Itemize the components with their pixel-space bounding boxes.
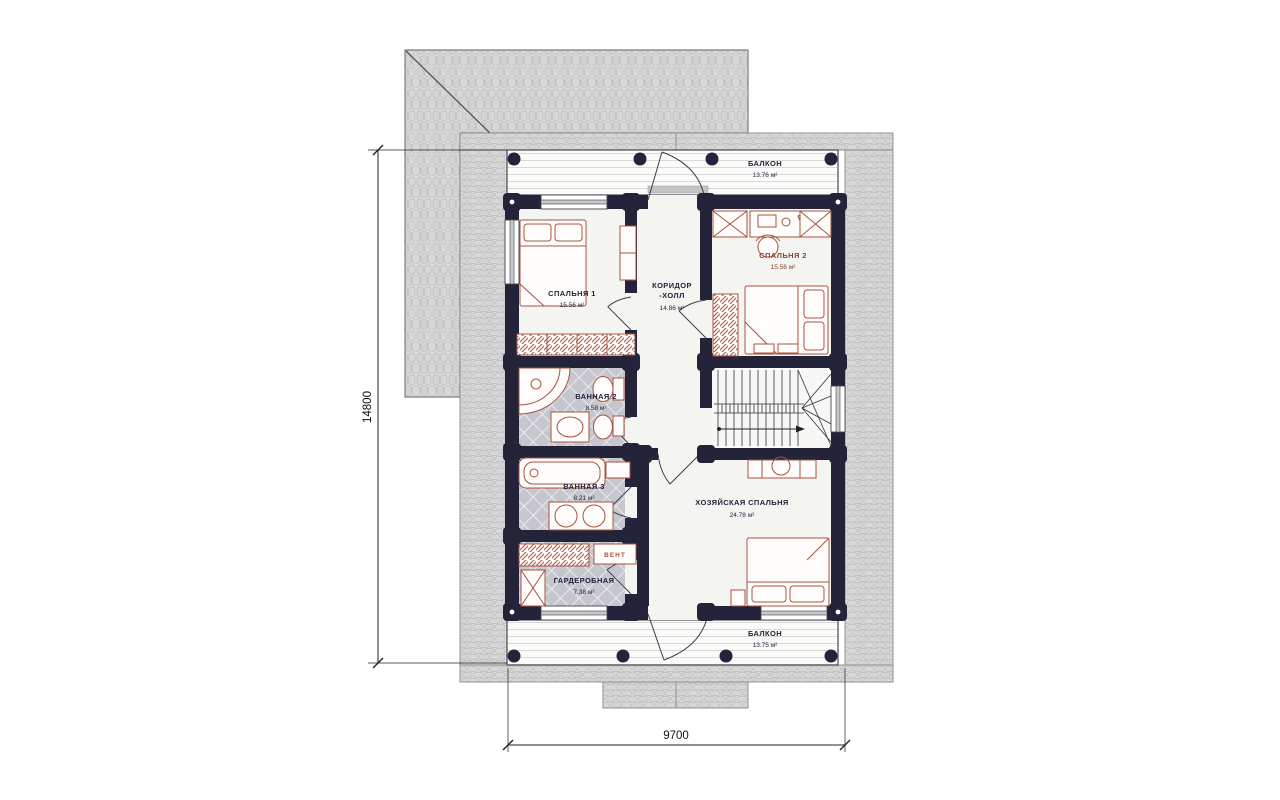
balcony-post [825,153,838,166]
room-label-bedroom2: СПАЛЬНЯ 2 [759,251,807,260]
room-label-wardrobe: ГАРДЕРОБНАЯ [554,576,615,585]
door-threshold [648,186,708,193]
window-master-bottom [761,606,827,620]
cabinet-icon-bath3 [606,462,630,478]
vent-shaft-box: ВЕНТ [594,544,636,564]
room-label-bath2: ВАННАЯ 2 [575,392,617,401]
roof-eave-top [460,133,893,150]
bidet-icon-bath2 [594,415,625,439]
wall-corridor-right [700,209,712,300]
dimension-height-value: 14800 [362,391,374,423]
balcony-post [508,153,521,166]
room-area-bedroom2: 15.56 м² [771,264,797,271]
vent-label: ВЕНТ [604,552,626,559]
closet-icon-wardrobe-left [521,570,545,606]
stairs [712,368,831,448]
wall-bedroom2-stairs [712,356,831,368]
floor-plan-page: БАЛКОН 13.76 м² БАЛКОН 13.75 м² [0,0,1280,800]
closet-icon-bedroom2-left [713,211,747,237]
wall-corridor-right [700,338,712,408]
window-wardrobe-bottom [541,606,607,620]
wall-master-top [700,448,831,460]
roof-eave-left [460,150,507,682]
room-area-balcony-top: 13.76 м² [753,172,779,179]
room-area-bath2: 8.58 м² [585,405,607,412]
bed-icon-bedroom2 [745,286,828,354]
shelf-icon-bedroom2 [713,294,738,356]
room-area-bedroom1: 15.56 м² [560,302,586,309]
dresser-icon-bedroom1 [517,334,635,355]
closet-icon-bedroom2-right [800,211,831,237]
wall-bath2-bath3 [505,446,637,458]
room-label-master: ХОЗЯЙСКАЯ СПАЛЬНЯ [695,498,788,507]
double-sink-icon-bath3 [549,502,613,530]
wall-bedroom1-bath2 [505,356,637,368]
roof-eave-right [845,150,893,682]
dresser-icon-master [748,457,816,478]
balcony-post [617,650,630,663]
room-area-corridor: 14.86 м² [660,305,686,312]
balcony-post [706,153,719,166]
balcony-post [825,650,838,663]
wall-bath3-wardrobe [505,530,637,542]
dimension-width-value: 9700 [663,730,689,742]
room-label-bath3: ВАННАЯ 3 [563,482,605,491]
room-area-balcony-bottom: 13.75 м² [753,642,779,649]
room-label-balcony-top: БАЛКОН [748,159,782,168]
window-stairs-right [831,386,845,432]
washbasin-icon-bath2 [551,412,589,442]
room-area-master: 24.78 м² [730,512,756,519]
room-label-balcony-bottom: БАЛКОН [748,629,782,638]
wardrobe-icon-bedroom1 [620,226,636,280]
balcony-post [508,650,521,663]
balcony-bottom: БАЛКОН 13.75 м² [507,620,838,665]
window-bedroom1-top [541,195,607,209]
room-label-corridor-line2: -ХОЛЛ [659,291,684,300]
room-area-bath3: 8.21 м² [573,495,595,502]
balcony-post [720,650,733,663]
balcony-post [634,153,647,166]
room-label-bedroom1: СПАЛЬНЯ 1 [548,289,596,298]
window-bedroom1-left [505,220,519,284]
room-label-corridor-line1: КОРИДОР [652,281,692,290]
roof-eave-bottom [460,665,893,682]
roof-bottom-tab [603,682,748,708]
closet-rail-icon-wardrobe [519,544,589,566]
room-area-wardrobe: 7.38 м² [573,589,595,596]
floor-plan-drawing: БАЛКОН 13.76 м² БАЛКОН 13.75 м² [0,0,1280,800]
